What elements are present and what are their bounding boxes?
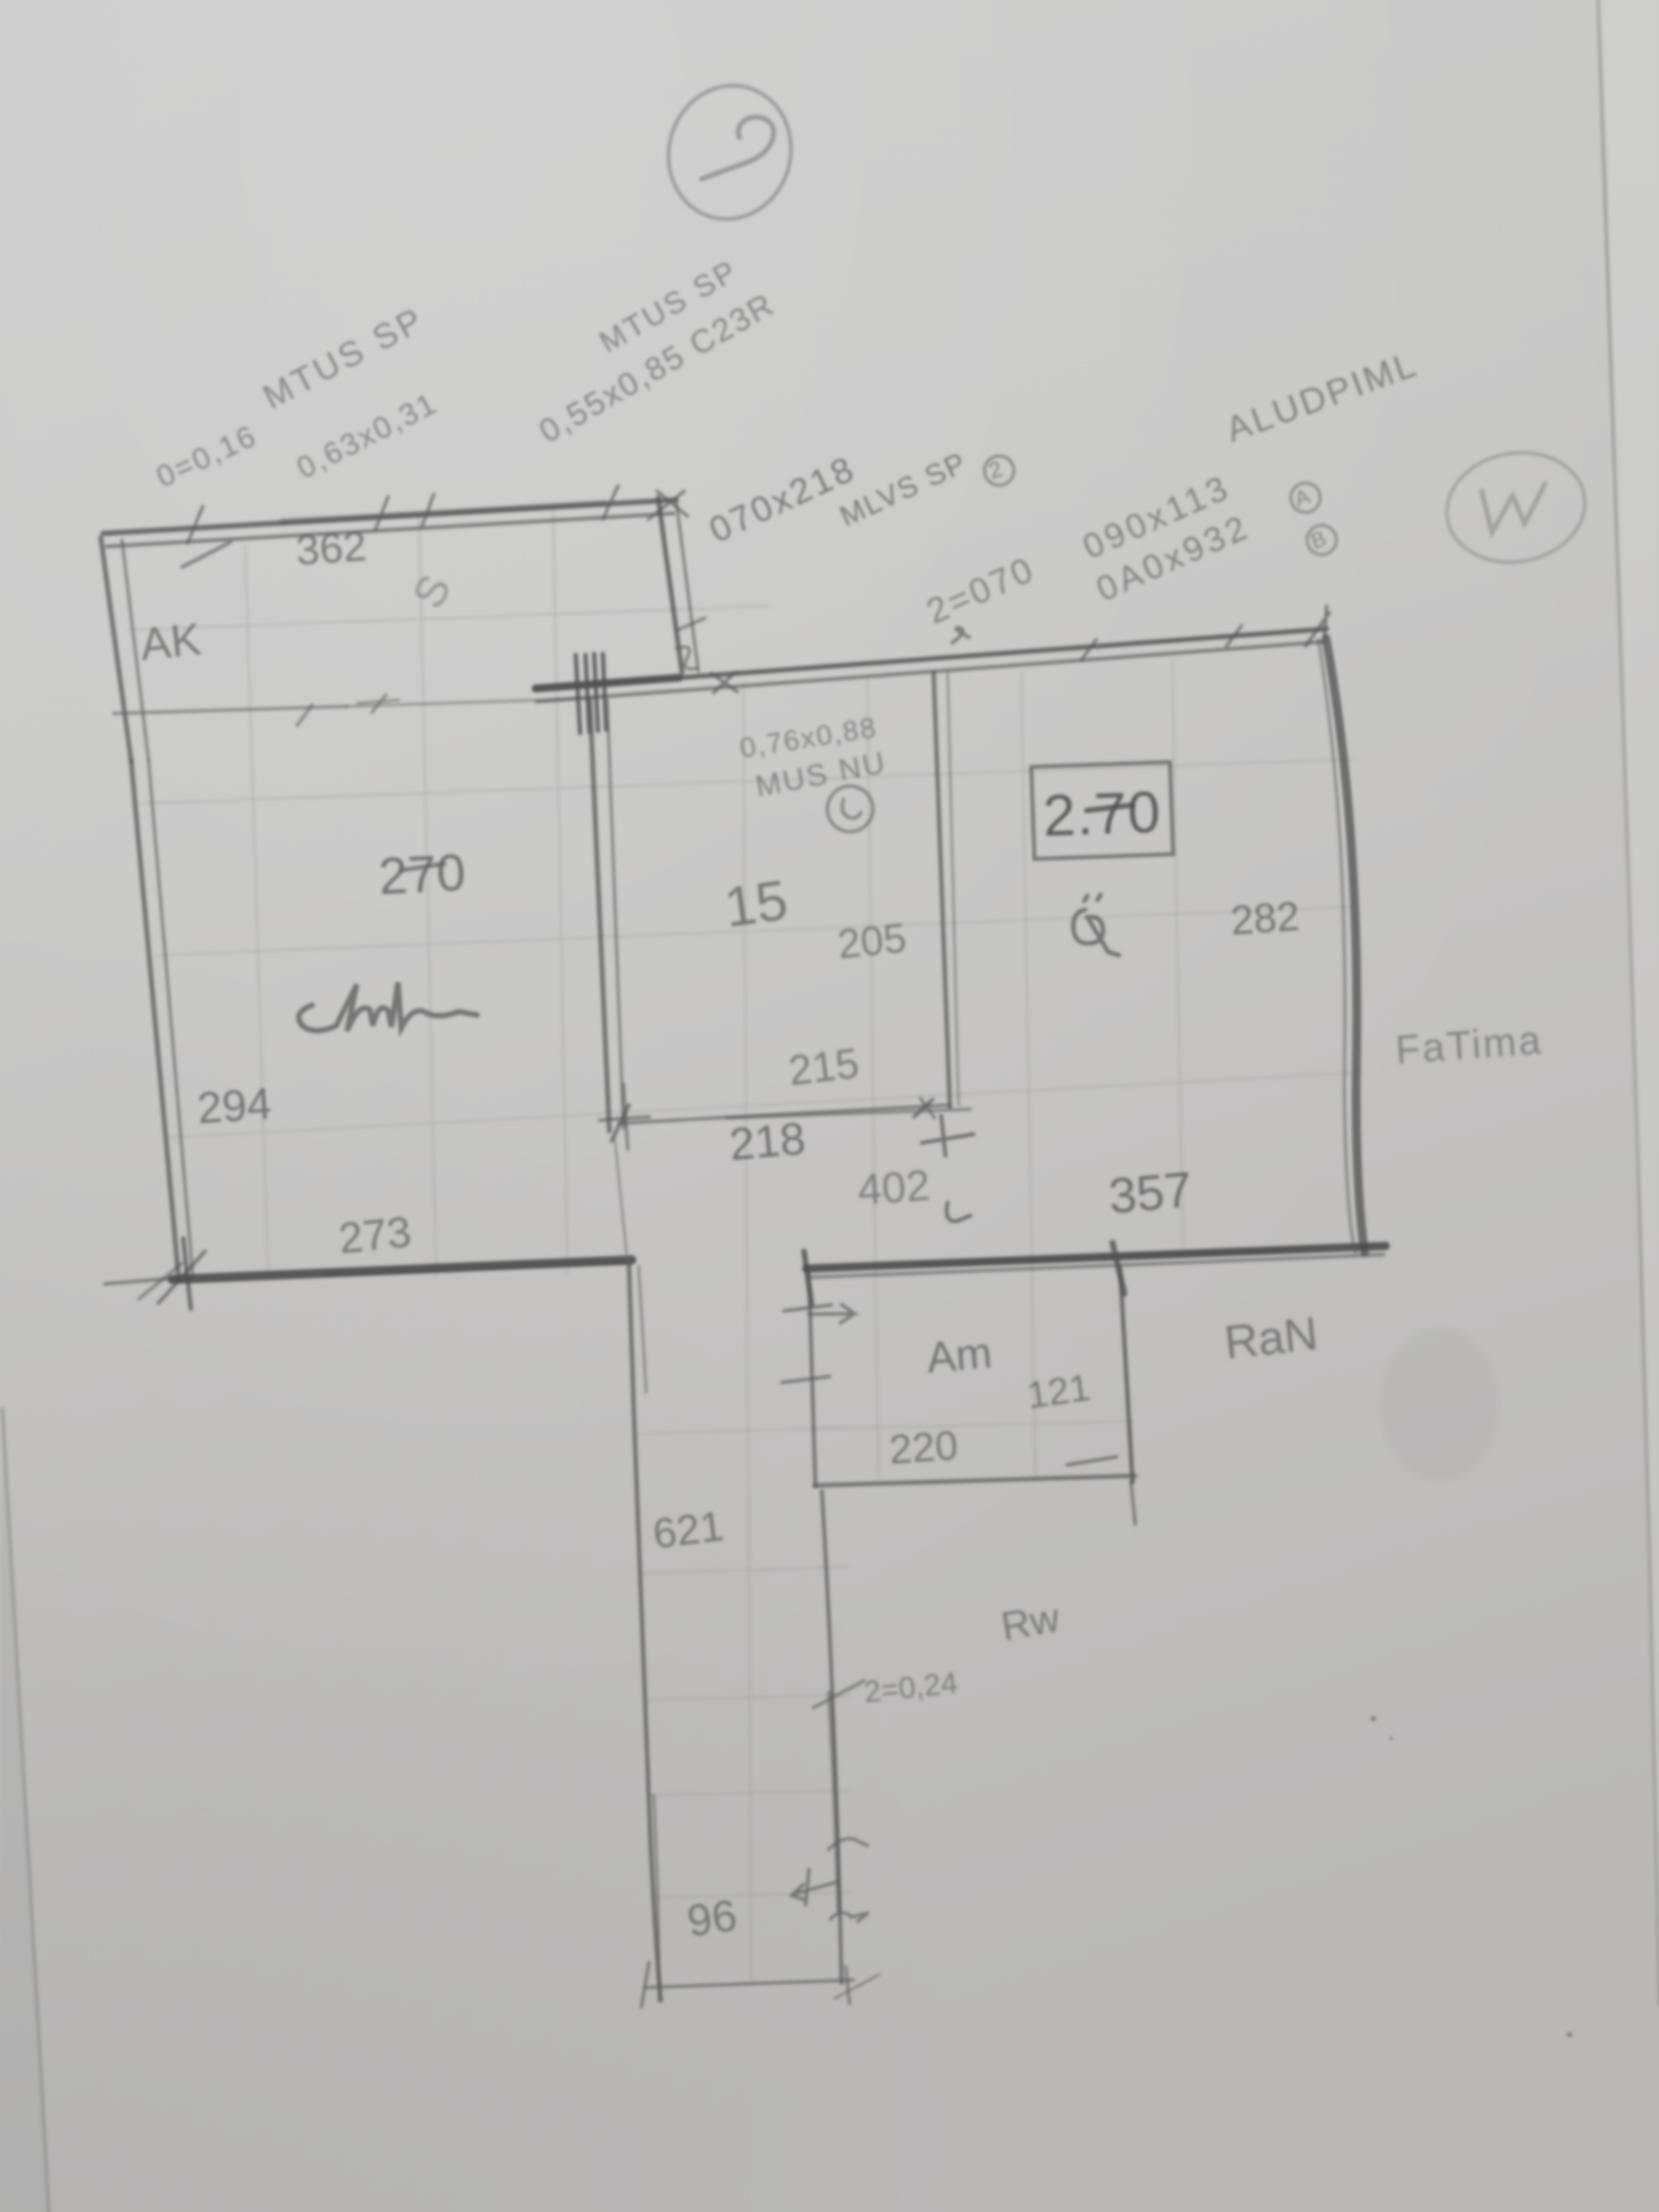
svg-text:AK: AK	[138, 613, 203, 670]
svg-text:15: 15	[721, 869, 792, 940]
svg-text:220: 220	[888, 1422, 959, 1473]
svg-text:402: 402	[856, 1161, 931, 1214]
svg-text:Am: Am	[925, 1328, 994, 1382]
svg-text:205: 205	[835, 915, 909, 968]
svg-text:2.70: 2.70	[1042, 779, 1162, 848]
svg-text:215: 215	[786, 1039, 861, 1095]
svg-text:218: 218	[727, 1113, 807, 1170]
svg-text:273: 273	[336, 1207, 413, 1262]
svg-text:RaN: RaN	[1222, 1307, 1320, 1368]
svg-text:121: 121	[1024, 1366, 1093, 1416]
svg-text:357: 357	[1107, 1162, 1194, 1224]
svg-text:362: 362	[294, 522, 368, 574]
svg-text:270: 270	[377, 843, 467, 905]
svg-text:96: 96	[684, 1891, 740, 1946]
svg-text:621: 621	[650, 1502, 726, 1558]
svg-text:282: 282	[1229, 893, 1301, 944]
svg-text:294: 294	[196, 1079, 273, 1133]
